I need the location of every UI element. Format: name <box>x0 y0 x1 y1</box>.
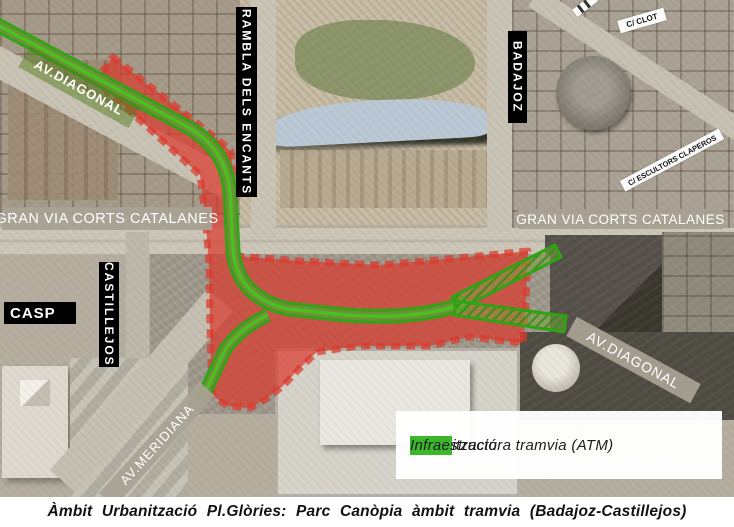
street-label-rambla-dels-encants: RAMBLA DELS ENCANTS <box>236 7 257 197</box>
street-label-gran-via-left: GRAN VIA CORTS CATALANES <box>2 207 212 230</box>
street-label-castillejos: CASTILLEJOS <box>99 262 119 367</box>
aerial-map: AV.DIAGONAL RAMBLA DELS ENCANTS BADAJOZ … <box>0 0 734 497</box>
legend: Urbanització Infraestructura tramvia (AT… <box>396 411 722 479</box>
figure-caption: Àmbit Urbanització Pl.Glòries: Parc Canò… <box>0 497 734 527</box>
legend-label: Infraestructura tramvia (ATM) <box>410 437 613 454</box>
figure: AV.DIAGONAL RAMBLA DELS ENCANTS BADAJOZ … <box>0 0 734 527</box>
street-label-casp: CASP <box>4 302 76 324</box>
street-label-gran-via-right: GRAN VIA CORTS CATALANES <box>518 209 723 229</box>
street-label-badajoz: BADAJOZ <box>508 31 527 123</box>
